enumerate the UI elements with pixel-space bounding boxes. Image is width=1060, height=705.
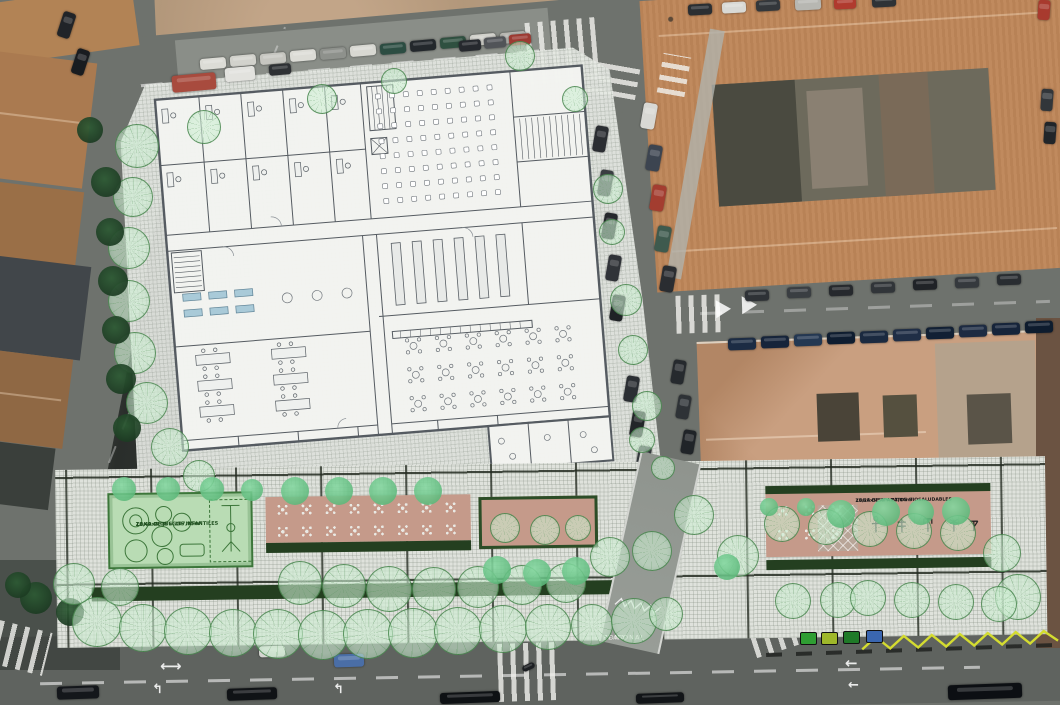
plan-tree-icon	[674, 495, 714, 535]
tree-icon	[908, 499, 934, 525]
dark-tree-icon	[96, 218, 124, 246]
plan-tree-icon	[599, 219, 625, 245]
plan-tree-icon	[894, 582, 930, 618]
plan-tree-icon	[101, 568, 139, 606]
plan-tree-icon	[298, 610, 348, 660]
plan-tree-icon	[115, 124, 159, 168]
tree-icon	[827, 500, 855, 528]
plan-tree-icon	[850, 580, 886, 616]
plan-tree-icon	[618, 335, 648, 365]
tree-icon	[281, 477, 309, 505]
plan-tree-icon	[632, 531, 672, 571]
aerial-site-plan: ZONA DE JUEGOS INFANTILES 13,49x8,00 = 1…	[0, 0, 1060, 705]
tree-icon	[156, 477, 180, 501]
tree-icon	[562, 557, 590, 585]
plan-tree-icon	[119, 604, 167, 652]
plan-tree-icon	[343, 609, 393, 659]
plan-tree-icon	[649, 597, 683, 631]
tree-icon	[112, 477, 136, 501]
trees-layer	[0, 0, 1060, 705]
plan-tree-icon	[434, 607, 482, 655]
plan-tree-icon	[562, 86, 588, 112]
tree-icon	[200, 477, 224, 501]
tree-icon	[325, 477, 353, 505]
plan-tree-icon	[151, 428, 189, 466]
plan-tree-icon	[632, 391, 662, 421]
plan-tree-icon	[775, 583, 811, 619]
plan-tree-icon	[938, 584, 974, 620]
plan-tree-icon	[530, 515, 560, 545]
tree-icon	[714, 554, 740, 580]
dark-tree-icon	[5, 572, 31, 598]
plan-tree-icon	[651, 456, 675, 480]
plan-tree-icon	[322, 564, 366, 608]
plan-tree-icon	[571, 604, 613, 646]
dark-tree-icon	[113, 414, 141, 442]
plan-tree-icon	[412, 567, 456, 611]
plan-tree-icon	[307, 84, 337, 114]
tree-icon	[760, 498, 778, 516]
tree-icon	[523, 559, 551, 587]
plan-tree-icon	[590, 537, 630, 577]
plan-tree-icon	[981, 586, 1017, 622]
plan-tree-icon	[565, 515, 591, 541]
plan-tree-icon	[593, 174, 623, 204]
plan-tree-icon	[278, 561, 322, 605]
dark-tree-icon	[91, 167, 121, 197]
dark-tree-icon	[106, 364, 136, 394]
tree-icon	[414, 477, 442, 505]
plan-tree-icon	[525, 604, 571, 650]
plan-tree-icon	[53, 563, 95, 605]
plan-tree-icon	[388, 608, 438, 658]
plan-tree-icon	[490, 513, 520, 543]
plan-tree-icon	[983, 534, 1021, 572]
plan-tree-icon	[366, 566, 412, 612]
dark-tree-icon	[102, 316, 130, 344]
tree-icon	[483, 556, 511, 584]
plan-tree-icon	[505, 41, 535, 71]
plan-tree-icon	[253, 609, 303, 659]
plan-tree-icon	[381, 68, 407, 94]
tree-icon	[872, 498, 900, 526]
plan-tree-icon	[164, 607, 212, 655]
plan-tree-icon	[629, 427, 655, 453]
tree-icon	[797, 498, 815, 516]
tree-icon	[241, 479, 263, 501]
plan-tree-icon	[187, 110, 221, 144]
tree-icon	[369, 477, 397, 505]
plan-tree-icon	[479, 605, 527, 653]
dark-tree-icon	[98, 266, 128, 296]
plan-tree-icon	[610, 284, 642, 316]
tree-icon	[942, 497, 970, 525]
plan-tree-icon	[209, 609, 257, 657]
dark-tree-icon	[77, 117, 103, 143]
